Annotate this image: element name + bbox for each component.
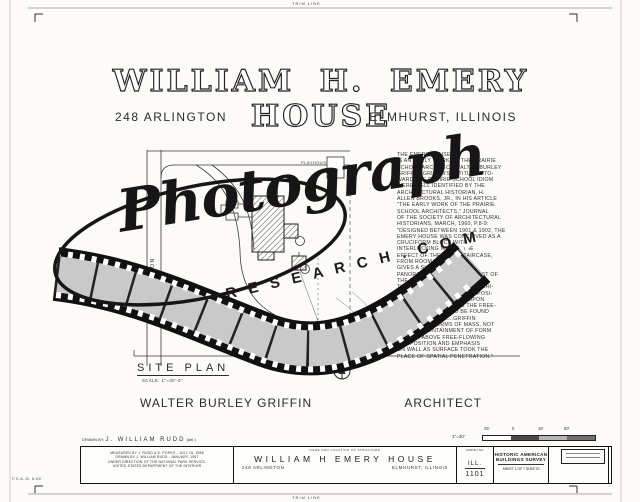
name-location-cell: NAME AND LOCATION OF STRUCTURE WILLIAM H… <box>234 447 457 483</box>
drawn-by-line: DRAWN BY: J. WILLIAM RUDD (del.) <box>82 437 196 443</box>
attribution-row: WALTER BURLEY GRIFFIN ARCHITECT <box>30 396 612 410</box>
drawn-by-label: DRAWN BY: <box>82 437 104 442</box>
site-plan-title: SITE PLAN <box>137 362 229 376</box>
habs-cell: HISTORIC AMERICAN BUILDINGS SURVEY SHEET… <box>494 447 549 483</box>
stamp-cell <box>549 447 609 483</box>
architect-name: WALTER BURLEY GRIFFIN <box>140 396 312 410</box>
name-location-header: NAME AND LOCATION OF STRUCTURE <box>234 448 456 452</box>
trim-line-label-bottom: TRIM LINE <box>292 495 321 500</box>
architect-title: ARCHITECT <box>404 396 482 410</box>
scale-ratio-label: 1"=30' <box>452 434 465 439</box>
structure-city: ELMHURST, ILLINOIS <box>392 465 448 470</box>
scale-tick-15: 15' <box>538 426 543 431</box>
city-state: ELMHURST, ILLINOIS <box>369 110 517 124</box>
scale-tick-50: 50' <box>564 426 569 431</box>
microtext-box <box>561 449 605 464</box>
street-address: 248 ARLINGTON <box>115 110 227 124</box>
structure-address: 248 ARLINGTON <box>242 465 284 470</box>
habs-drawing-sheet: TRIM LINE TRIM LINE F.S.A.-B. 6-66 WILLI… <box>0 0 640 502</box>
credits-cell: MEASURED BY J. RUDD & E. POPKO - JULY 15… <box>81 447 234 483</box>
graphic-scale: 1"=30' 25' 0 15' 50' <box>452 426 594 444</box>
habs-title-line2: BUILDINGS SURVEY <box>494 457 548 462</box>
site-plan-scale-note: SCALE: 1"=30'-0" <box>142 378 183 383</box>
trim-line-label-top: TRIM LINE <box>292 1 321 6</box>
print-code-text: F.S.A.-B. 6-66 <box>12 476 41 481</box>
title-block: MEASURED BY J. RUDD & E. POPKO - JULY 15… <box>80 446 612 484</box>
structure-name: WILLIAM H EMERY HOUSE <box>234 454 456 464</box>
address-row: 248 ARLINGTON ELMHURST, ILLINOIS <box>30 110 612 124</box>
scale-tick-0: 0 <box>512 426 514 431</box>
sheet-count: SHEET 1 OF 7 SHEETS <box>498 464 544 471</box>
survey-number: 1101 <box>457 471 493 478</box>
north-arrow-icon <box>334 363 350 379</box>
delineator-name: J. WILLIAM RUDD <box>105 437 185 443</box>
survey-state: ILL. <box>465 461 485 469</box>
scale-bar <box>482 435 596 441</box>
delineator-suffix: (del.) <box>187 437 196 442</box>
scale-tick-25: 25' <box>484 426 489 431</box>
survey-number-cell: SURVEY NO. ILL. 1101 <box>457 447 494 483</box>
